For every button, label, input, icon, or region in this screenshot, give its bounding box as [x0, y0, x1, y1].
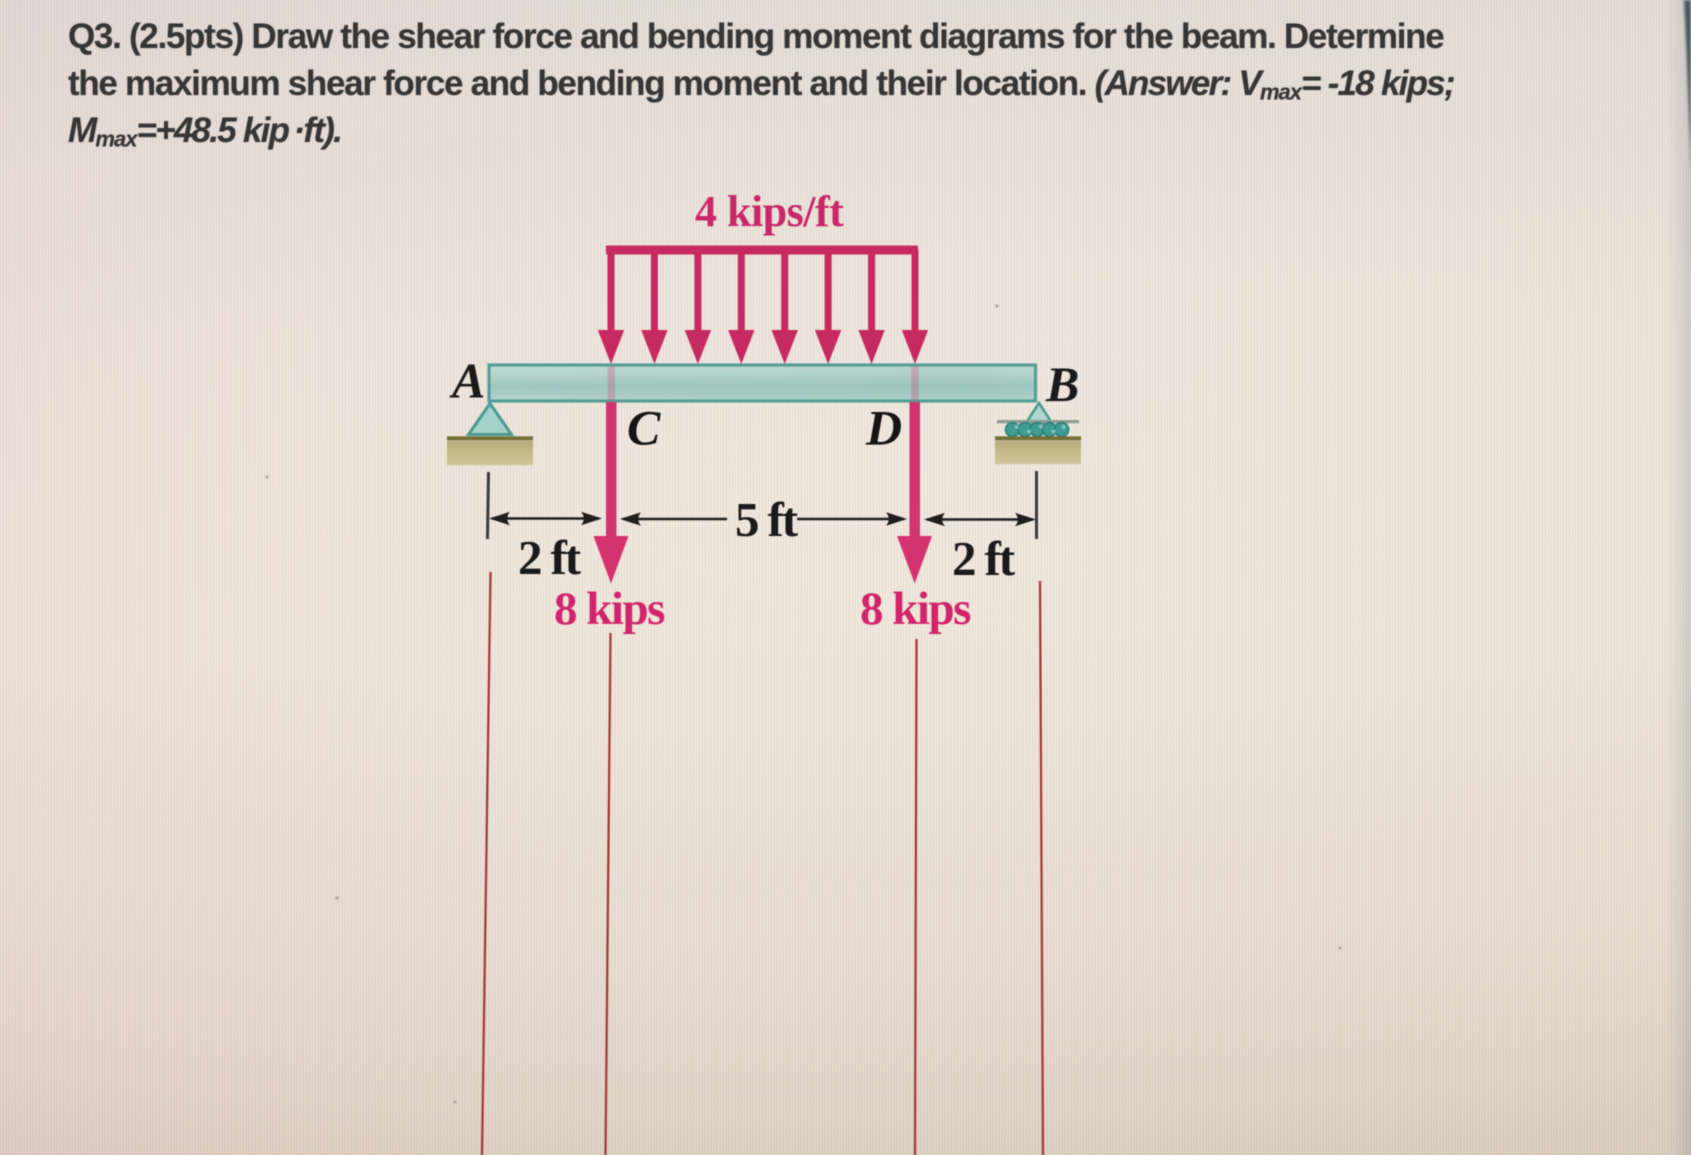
svg-text:B: B [1045, 356, 1079, 412]
svg-text:4 kips/ft: 4 kips/ft [695, 187, 844, 236]
svg-text:D: D [865, 400, 902, 456]
svg-text:C: C [627, 400, 661, 456]
svg-text:5 ft: 5 ft [735, 492, 799, 547]
svg-text:8 kips: 8 kips [554, 583, 665, 635]
svg-text:8 kips: 8 kips [860, 583, 971, 635]
svg-text:2 ft: 2 ft [518, 530, 582, 585]
svg-text:A: A [449, 353, 485, 409]
svg-text:2 ft: 2 ft [952, 531, 1016, 586]
